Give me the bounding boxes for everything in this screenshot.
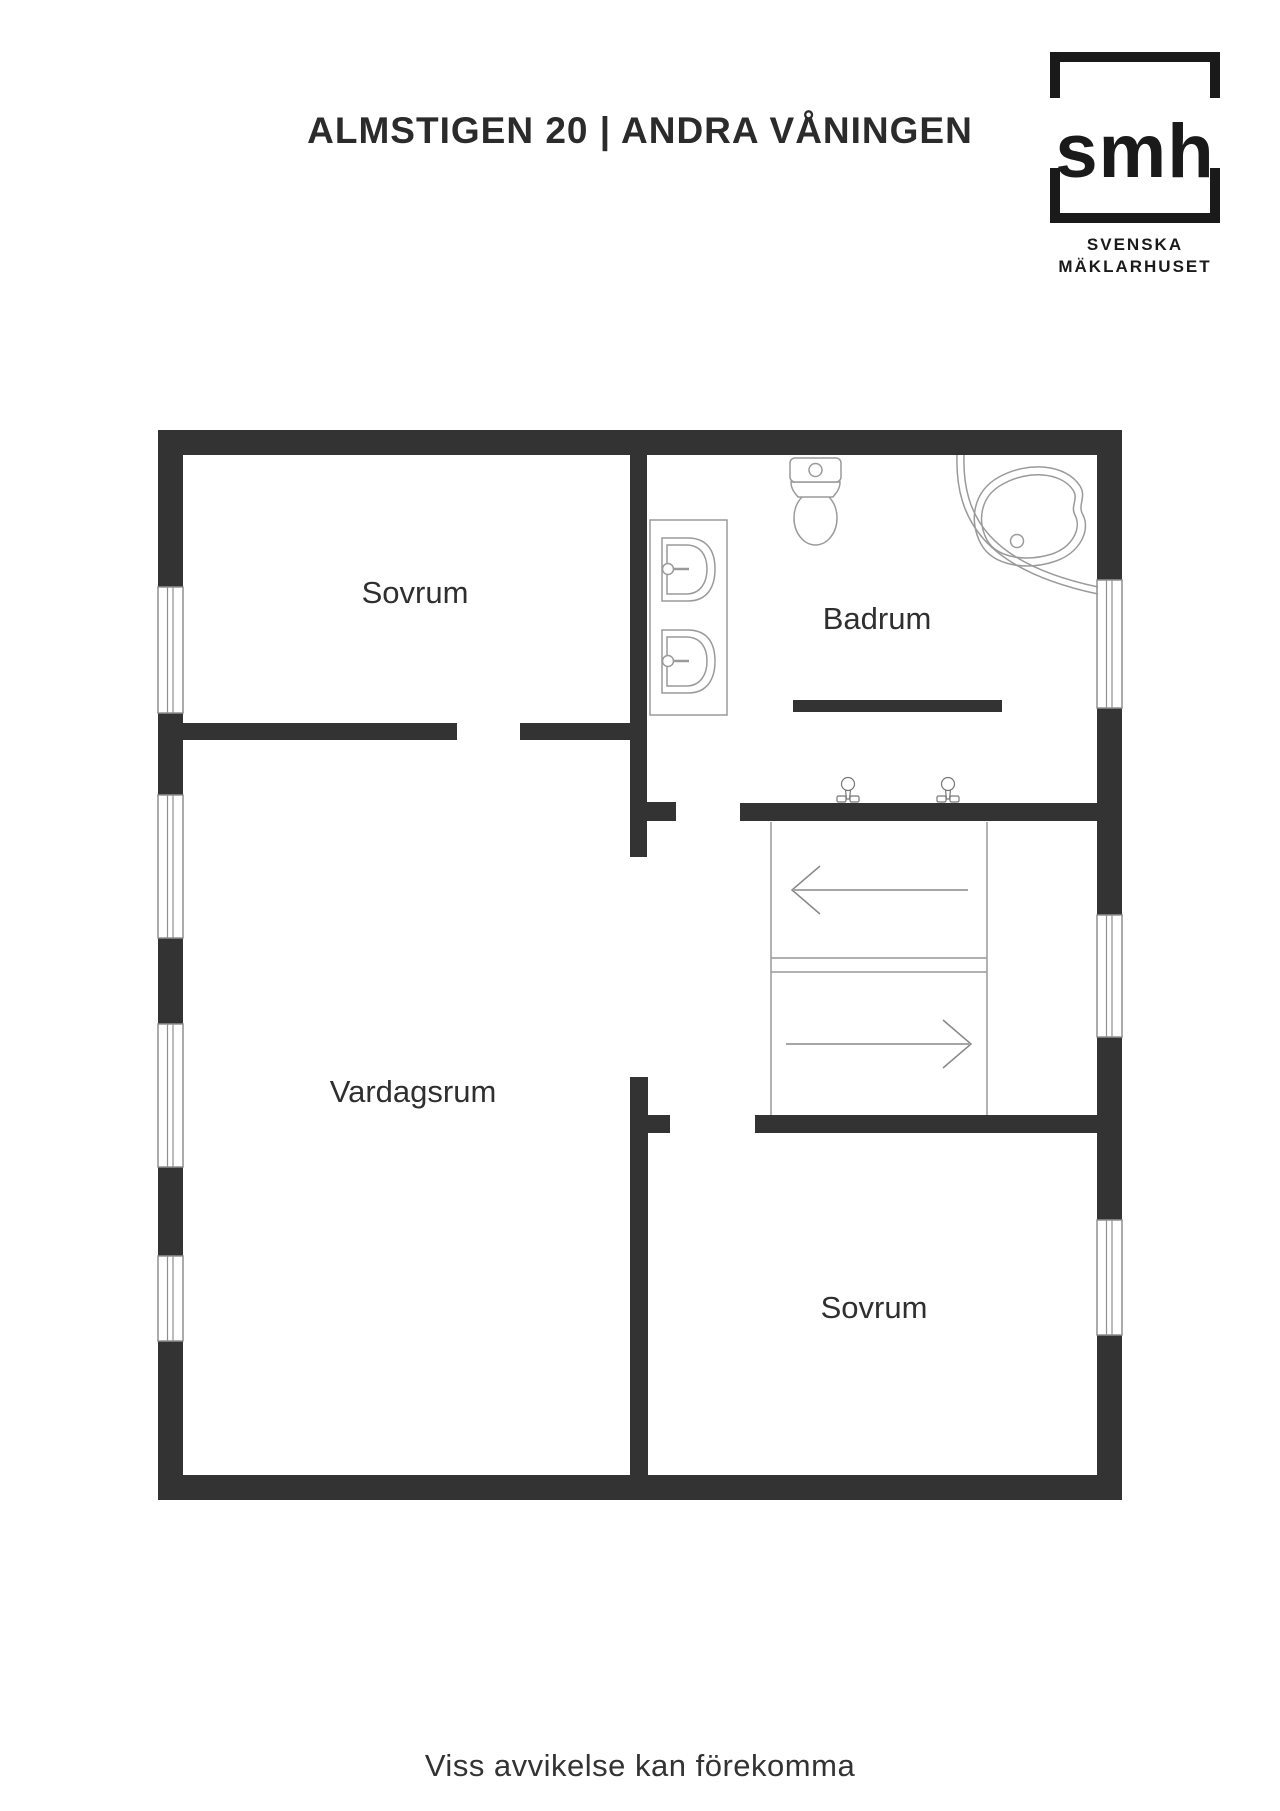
window-icon (158, 795, 183, 938)
room-label-sovrum-bottom: Sovrum (821, 1290, 928, 1325)
bathtub-icon (957, 455, 1098, 594)
stair-arrow-left-icon (792, 866, 968, 914)
stair-arrow-right-icon (786, 1020, 971, 1068)
room-label-sovrum-top: Sovrum (362, 575, 469, 610)
window-icon (158, 1256, 183, 1341)
window-icon (1097, 580, 1122, 708)
window-icon (1097, 1220, 1122, 1335)
floor-plan: Sovrum Badrum Vardagsrum Sovrum (0, 0, 1280, 1811)
toilet-icon (790, 458, 841, 545)
staircase (771, 822, 987, 1115)
window-icon (158, 1024, 183, 1167)
room-label-vardagsrum: Vardagsrum (330, 1074, 497, 1109)
room-label-badrum: Badrum (823, 601, 932, 636)
disclaimer-text: Viss avvikelse kan förekomma (0, 1748, 1280, 1784)
window-icon (158, 587, 183, 713)
window-icon (1097, 915, 1122, 1037)
tap-icon (937, 778, 959, 803)
double-sink-icon (650, 520, 727, 715)
tap-icon (837, 778, 859, 803)
